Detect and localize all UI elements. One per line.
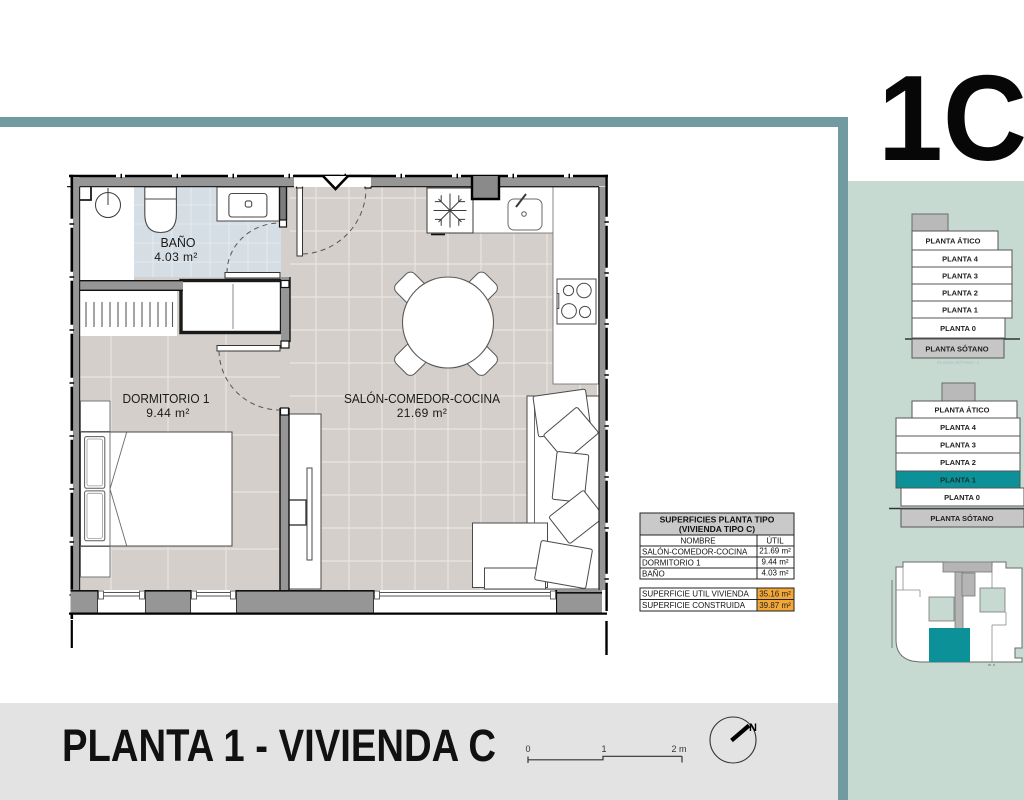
- svg-text:ÚTIL: ÚTIL: [766, 537, 784, 546]
- svg-text:4.03 m²: 4.03 m²: [761, 569, 788, 578]
- svg-text:PLANTA 2: PLANTA 2: [942, 289, 978, 298]
- svg-text:BAÑO: BAÑO: [161, 235, 196, 250]
- svg-text:NOMBRE: NOMBRE: [680, 537, 715, 546]
- svg-text:PLANTA 1 - VIVIENDA C: PLANTA 1 - VIVIENDA C: [62, 720, 496, 771]
- svg-text:DORMITORIO 1: DORMITORIO 1: [123, 391, 210, 406]
- svg-text:35.16 m²: 35.16 m²: [759, 590, 791, 599]
- svg-text:SUPERFICIES PLANTA TIPO: SUPERFICIES PLANTA TIPO: [660, 515, 775, 525]
- svg-text:PLANTA 0: PLANTA 0: [944, 493, 980, 502]
- svg-text:SUPERFICIE CONSTRUIDA: SUPERFICIE CONSTRUIDA: [642, 601, 746, 610]
- svg-text:PLANTA SÓTANO -2: PLANTA SÓTANO -2: [937, 359, 980, 365]
- svg-text:PLANTA 2: PLANTA 2: [940, 458, 976, 467]
- svg-text:SUPERFICIE UTIL VIVIENDA: SUPERFICIE UTIL VIVIENDA: [642, 590, 750, 599]
- svg-text:PLANTA 4: PLANTA 4: [942, 255, 979, 264]
- svg-text:PLANTA SÓTANO: PLANTA SÓTANO: [925, 345, 988, 354]
- svg-text:PLANTA 3: PLANTA 3: [940, 441, 976, 450]
- svg-text:PLANTA 1: PLANTA 1: [940, 476, 976, 485]
- svg-text:PLANTA 0: PLANTA 0: [940, 324, 976, 333]
- svg-text:BAÑO: BAÑO: [642, 570, 665, 579]
- svg-text:N: N: [749, 722, 757, 734]
- svg-text:2 m: 2 m: [671, 744, 686, 754]
- svg-text:39.87 m²: 39.87 m²: [759, 601, 791, 610]
- svg-text:9.44 m²: 9.44 m²: [761, 558, 788, 567]
- svg-text:DORMITORIO 1: DORMITORIO 1: [642, 559, 701, 568]
- svg-text:PLANTA 4: PLANTA 4: [940, 423, 977, 432]
- svg-text:PLANTA ÁTICO: PLANTA ÁTICO: [926, 237, 981, 246]
- svg-text:9.44 m²: 9.44 m²: [146, 406, 189, 420]
- svg-text:(VIVIENDA TIPO C): (VIVIENDA TIPO C): [679, 524, 755, 534]
- svg-text:1C: 1C: [878, 50, 1024, 186]
- svg-text:21.69 m²: 21.69 m²: [397, 406, 448, 420]
- svg-text:PLANTA ÁTICO: PLANTA ÁTICO: [935, 406, 990, 415]
- svg-text:SALÓN-COMEDOR-COCINA: SALÓN-COMEDOR-COCINA: [642, 548, 748, 557]
- svg-text:PLANTA 3: PLANTA 3: [942, 272, 978, 281]
- svg-text:21.69 m²: 21.69 m²: [759, 547, 791, 556]
- svg-text:PLANTA SÓTANO: PLANTA SÓTANO: [930, 514, 993, 523]
- svg-text:SALÓN-COMEDOR-COCINA: SALÓN-COMEDOR-COCINA: [344, 391, 500, 406]
- svg-text:1: 1: [601, 744, 606, 754]
- svg-text:4.03 m²: 4.03 m²: [154, 250, 197, 264]
- svg-text:0: 0: [525, 744, 530, 754]
- svg-text:PLANTA 1: PLANTA 1: [942, 306, 978, 315]
